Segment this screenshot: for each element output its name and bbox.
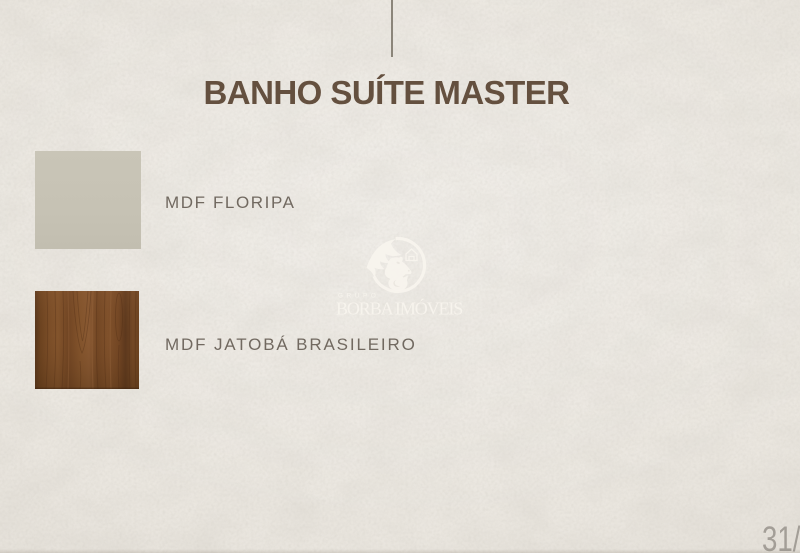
svg-text:BORBA IMÓVEIS: BORBA IMÓVEIS: [336, 298, 462, 319]
